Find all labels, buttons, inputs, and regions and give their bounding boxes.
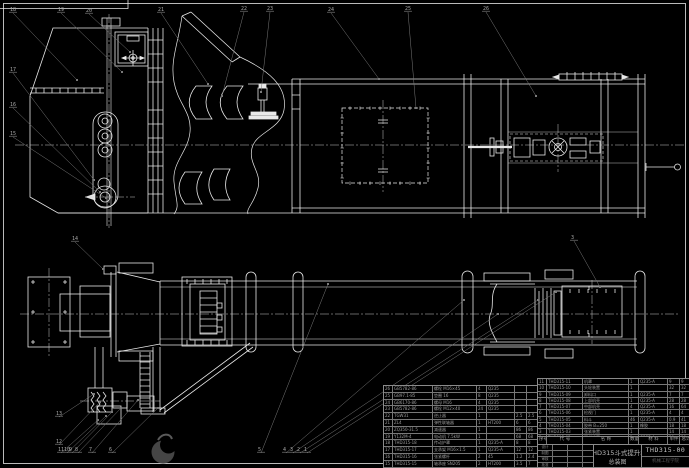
bom-row: 18THD315-18传动护罩1Q235-A88 <box>384 440 550 447</box>
bom-cell: 25 <box>384 393 393 399</box>
bom-cell: ZQ350-31.5 <box>393 427 433 433</box>
callout-number: 21 <box>158 7 164 13</box>
callout-number: 12 <box>56 439 62 445</box>
leader-tip <box>97 419 99 421</box>
leader-tip <box>378 78 380 80</box>
leader-tip <box>111 411 113 413</box>
callout-number: 26 <box>483 6 489 12</box>
bom-cell: THD315-09 <box>547 392 583 397</box>
bom-cell: 1 <box>477 447 487 453</box>
bom-cell: Q235-A <box>639 410 668 415</box>
bom-cell: 7 <box>680 392 689 397</box>
bom-cell: GB5782-86 <box>393 406 433 412</box>
leader-tip <box>555 291 557 293</box>
bom-cell: 弹性联轴器 <box>433 420 477 426</box>
product-title: THD315斗式提升机 <box>594 447 642 457</box>
leader-line <box>261 12 270 92</box>
bom-cell: 支承架 M16×1.5 <box>433 447 477 453</box>
bom-cell: 4 <box>668 410 680 415</box>
leader-tip <box>93 179 95 181</box>
signature-grid: 设计 制图 审核 批准 <box>538 445 594 467</box>
bom-cell: 胶带 B=250 <box>583 423 629 428</box>
bom-cell: 8 <box>477 393 487 399</box>
callout-number: 25 <box>405 6 411 12</box>
bom-cell: 1 <box>629 385 639 390</box>
bom-cell: 上部机壳 <box>583 398 629 403</box>
leader-tip <box>157 407 159 409</box>
bom-cell: Q235-A <box>639 379 668 384</box>
leader-tip <box>221 95 223 97</box>
bom-cell: 32 <box>680 385 689 390</box>
head-bearing-detail <box>115 32 148 66</box>
leader-line <box>67 416 106 453</box>
bom-cell: GB5782-86 <box>393 386 433 392</box>
callout-number: 20 <box>86 8 92 14</box>
bom-cell: 3.5 <box>515 461 527 467</box>
bom-cell: 20 <box>384 427 393 433</box>
bom-row: 23GB5782-86螺栓 M12×4024Q235 <box>384 406 550 413</box>
bom-cell: Q235-A <box>639 392 668 397</box>
cad-drawing-canvas: 1819202122232425261716151431312111098765… <box>0 0 689 468</box>
feed-panel <box>182 277 232 346</box>
bom-cell: 张紧螺杆 <box>433 454 477 460</box>
callout-number: 19 <box>58 7 64 13</box>
bom-row: 17THD315-17支承架 M16×1.51Q235-A1212 <box>384 447 550 454</box>
bom-cell: THD315-03 <box>547 429 583 434</box>
bom-cell: 24 <box>477 406 487 412</box>
drawing-title-cell: THD315斗式提升机 总装图 <box>594 445 642 467</box>
leader-tip <box>497 313 499 315</box>
bom-cell: THD315-08 <box>547 398 583 403</box>
bom-cell: 7 <box>538 404 547 409</box>
bom-cell: 6 <box>515 420 527 426</box>
callout-number: 24 <box>328 7 334 13</box>
leader-tip <box>102 268 104 270</box>
leader-line <box>13 108 100 192</box>
bom-cell: 86 <box>515 427 527 433</box>
sheet-title: 总装图 <box>608 457 626 466</box>
bom-cell: 1 <box>477 420 487 426</box>
callout-number: 7 <box>89 447 92 453</box>
bom-cell: 头轮装置 <box>583 385 629 390</box>
bom-cell: ZL4 <box>393 420 433 426</box>
bom-cell: 45 <box>487 454 515 460</box>
bom-cell <box>515 406 527 412</box>
bom-cell: 24 <box>384 400 393 406</box>
bom-cell: 26 <box>384 386 393 392</box>
leader-tip <box>137 399 139 401</box>
organization: 机械工程学院 <box>642 457 689 467</box>
callout-number: 18 <box>10 7 16 13</box>
elevation-view <box>30 12 681 226</box>
leader-tip <box>207 83 209 85</box>
bom-cell: 中部机壳 <box>583 404 629 409</box>
bom-cell: THD315-15 <box>393 461 433 467</box>
bom-cell: 1 <box>629 392 639 397</box>
inspection-door-elevation <box>341 107 431 186</box>
bom-cell: 41 <box>680 417 689 422</box>
bom-row: 15THD315-15轴承座 SN2052HT2003.57 <box>384 461 550 468</box>
leader-line <box>574 241 600 287</box>
callout-number: 14 <box>72 236 78 242</box>
bom-cell: 18 <box>680 423 689 428</box>
bom-cell: 22 <box>384 413 393 419</box>
bom-cell: 1 <box>477 434 487 440</box>
bom-cell: Q235-A <box>639 417 668 422</box>
bom-cell: THD315-18 <box>393 440 433 446</box>
bom-cell: THD315-17 <box>393 447 433 453</box>
bom-cell: 4 <box>538 423 547 428</box>
callout-number: 22 <box>241 6 247 12</box>
drawing-number: THD315-00 <box>642 445 689 457</box>
bom-cell: 19 <box>384 434 393 440</box>
callout-number: 23 <box>267 6 273 12</box>
callout-number: 3 <box>571 235 574 241</box>
callout-number: 17 <box>10 67 16 73</box>
bom-row: 22TGW31逆止器12.52.5 <box>384 413 550 420</box>
callout-number: 9 <box>69 447 72 453</box>
bom-cell: THD315-05 <box>547 417 583 422</box>
leader-line <box>222 12 244 96</box>
bom-row: 26GB5782-86螺栓 M16×454Q235 <box>384 386 550 393</box>
bom-cell: 4 <box>477 386 487 392</box>
leader-line <box>408 12 416 108</box>
takeup-mechanism <box>468 132 681 171</box>
leader-line <box>13 137 106 198</box>
bom-cell: 1 <box>629 398 639 403</box>
leader-line <box>13 13 77 80</box>
bom-cell: THD315-11 <box>547 379 583 384</box>
sig-label: 制图 <box>538 451 553 456</box>
bom-cell: 1 <box>629 423 639 428</box>
bom-cell: 2 <box>477 461 487 467</box>
bom-cell: 1 <box>629 379 639 384</box>
leader-tip <box>327 283 329 285</box>
bom-cell <box>639 385 668 390</box>
callout-number: 13 <box>56 411 62 417</box>
leader-tip <box>99 191 101 193</box>
bom-cell: 11 <box>538 379 547 384</box>
bom-cell: 卸料口 <box>583 392 629 397</box>
bom-cell: 1 <box>629 410 639 415</box>
bom-cell: 减速器 <box>433 427 477 433</box>
bom-cell: 轴承座 SN205 <box>433 461 477 467</box>
callout-number: 16 <box>10 102 16 108</box>
bom-cell: TGW31 <box>393 413 433 419</box>
leader-line <box>61 13 122 72</box>
bom-cell: 8 <box>538 398 547 403</box>
bom-cell <box>515 400 527 406</box>
bom-cell: GB97.1-85 <box>393 393 433 399</box>
leader-line <box>78 408 121 453</box>
bom-cell: Q235-A <box>487 447 515 453</box>
bom-row: 21ZL4弹性联轴器1HT20066 <box>384 420 550 427</box>
bom-row: 25GB97.1-85垫圈 168Q235 <box>384 393 550 400</box>
bom-cell: 64 <box>680 404 689 409</box>
bom-cell: 1 <box>477 413 487 419</box>
bom-cell: Q235-A <box>639 398 668 403</box>
bom-cell: Q235-A <box>487 440 515 446</box>
leader-tip <box>129 51 131 53</box>
bom-cell: 7 <box>668 392 680 397</box>
bom-cell: 张紧装置 <box>583 429 629 434</box>
bom-cell: 28 <box>680 398 689 403</box>
callout-number: 2 <box>297 447 300 453</box>
bom-cell: 机罩 <box>583 379 629 384</box>
bom-cell <box>487 434 515 440</box>
boot-top-plate <box>553 72 628 80</box>
bom-cell: 1.2 <box>515 454 527 460</box>
bom-row: 24GB6170-86螺母 M164Q235 <box>384 400 550 407</box>
bom-cell: Y132M-4 <box>393 434 433 440</box>
bom-cell: 1 <box>629 429 639 434</box>
leader-tip <box>120 407 122 409</box>
bolt-detail <box>249 84 278 119</box>
bom-cell: 5 <box>538 417 547 422</box>
bom-cell: 检视门 <box>583 410 629 415</box>
bom-cell <box>487 427 515 433</box>
bom-cell: 螺栓 M16×45 <box>433 386 477 392</box>
leader-tip <box>463 299 465 301</box>
sig-label: 批准 <box>538 463 553 468</box>
bom-cell: THD315-07 <box>547 404 583 409</box>
bom-cell: 4 <box>629 404 639 409</box>
bom-cell: 0.9 <box>668 417 680 422</box>
bom-cell: 16 <box>384 454 393 460</box>
callout-number: 1 <box>304 447 307 453</box>
title-block: 设计 制图 审核 批准 THD315斗式提升机 总装图 THD315-00 机械… <box>537 444 689 468</box>
bom-cell: Q235 <box>487 400 515 406</box>
drawing-number-cell: THD315-00 机械工程学院 <box>642 445 689 467</box>
bom-cell: 橡胶 <box>639 423 668 428</box>
leader-line <box>13 73 94 180</box>
leader-tip <box>105 415 107 417</box>
bom-cell: 螺母 M16 <box>433 400 477 406</box>
bom-cell: 传动护罩 <box>433 440 477 446</box>
bom-cell <box>515 393 527 399</box>
leader-tip <box>415 107 417 109</box>
leader-line <box>261 284 328 453</box>
sig-label: 设计 <box>538 445 553 450</box>
bom-cell <box>639 429 668 434</box>
leader-tip <box>260 91 262 93</box>
bom-row: 20ZQ350-31.5减速器18686外购 <box>384 427 550 434</box>
leader-tip <box>599 286 601 288</box>
bom-cell: 12 <box>515 447 527 453</box>
bom-cell: 料斗 <box>583 417 629 422</box>
callout-number: 5 <box>258 447 261 453</box>
leader-tip <box>93 393 95 395</box>
bom-cell: 68 <box>515 434 527 440</box>
bom-cell: GB6170-86 <box>393 400 433 406</box>
bom-cell: 9 <box>668 379 680 384</box>
bom-cell: 18 <box>384 440 393 446</box>
callout-number: 4 <box>283 447 286 453</box>
bom-cell <box>487 413 515 419</box>
bom-cell: 8 <box>515 440 527 446</box>
bom-cell: 1 <box>477 440 487 446</box>
leader-line <box>331 13 379 79</box>
leader-tip <box>537 299 539 301</box>
bom-row: 19Y132M-4电动机 7.5kW16868外购 <box>384 434 550 441</box>
leader-line <box>161 13 208 84</box>
bom-cell: 17 <box>384 447 393 453</box>
bom-cell: HT200 <box>487 420 515 426</box>
bom-cell: 垫圈 16 <box>433 393 477 399</box>
bom-cell: 15 <box>384 461 393 467</box>
bom-cell: 21 <box>384 420 393 426</box>
callout-number: 15 <box>10 131 16 137</box>
bom-cell: 14 <box>668 429 680 434</box>
chain-sprocket-assembly <box>86 112 118 208</box>
leader-tip <box>105 197 107 199</box>
bom-cell: 46 <box>629 417 639 422</box>
bom-cell: 18 <box>668 423 680 428</box>
bom-cell: 2.5 <box>515 413 527 419</box>
bom-cell: 9 <box>680 379 689 384</box>
bom-cell: 16 <box>668 404 680 409</box>
leader-tip <box>76 79 78 81</box>
bom-table-standard-parts: 26GB5782-86螺栓 M16×454Q23525GB97.1-85垫圈 1… <box>383 385 550 468</box>
bom-cell: Q235 <box>487 406 515 412</box>
bom-row: 16THD315-16张紧螺杆2451.22.4 <box>384 454 550 461</box>
bom-cell: 电动机 7.5kW <box>433 434 477 440</box>
bom-cell: 3 <box>538 429 547 434</box>
bom-cell: 23 <box>384 406 393 412</box>
leader-line <box>112 408 158 453</box>
bom-cell: 2 <box>477 454 487 460</box>
leader-tip <box>99 401 101 403</box>
bom-cell: 1 <box>477 427 487 433</box>
bom-cell: 10 <box>538 385 547 390</box>
leader-line <box>486 12 536 96</box>
callout-number: 3 <box>290 447 293 453</box>
ink-blob <box>152 435 178 464</box>
leader-line <box>75 242 103 269</box>
bom-cell <box>515 386 527 392</box>
bom-cell: Q235-A <box>639 404 668 409</box>
leader-tip <box>121 71 123 73</box>
bom-cell: 28 <box>668 398 680 403</box>
bom-cell: Q235 <box>487 386 515 392</box>
bom-cell: 4 <box>477 400 487 406</box>
bom-cell: 4 <box>680 410 689 415</box>
bom-cell: THD315-10 <box>547 385 583 390</box>
bom-cell: THD315-06 <box>547 410 583 415</box>
bom-cell: 螺栓 M12×40 <box>433 406 477 412</box>
callout-number: 8 <box>75 447 78 453</box>
bom-cell: THD315-04 <box>547 423 583 428</box>
bom-cell: Q235 <box>487 393 515 399</box>
bom-cell: THD315-16 <box>393 454 433 460</box>
sig-label: 审核 <box>538 457 553 462</box>
bom-cell: HT200 <box>487 461 515 467</box>
bom-cell: 14 <box>680 429 689 434</box>
leader-tip <box>535 95 537 97</box>
bom-cell: 32 <box>668 385 680 390</box>
bom-cell: 9 <box>538 392 547 397</box>
bom-cell: 6 <box>538 410 547 415</box>
callout-number: 6 <box>109 447 112 453</box>
bom-cell: 逆止器 <box>433 413 477 419</box>
